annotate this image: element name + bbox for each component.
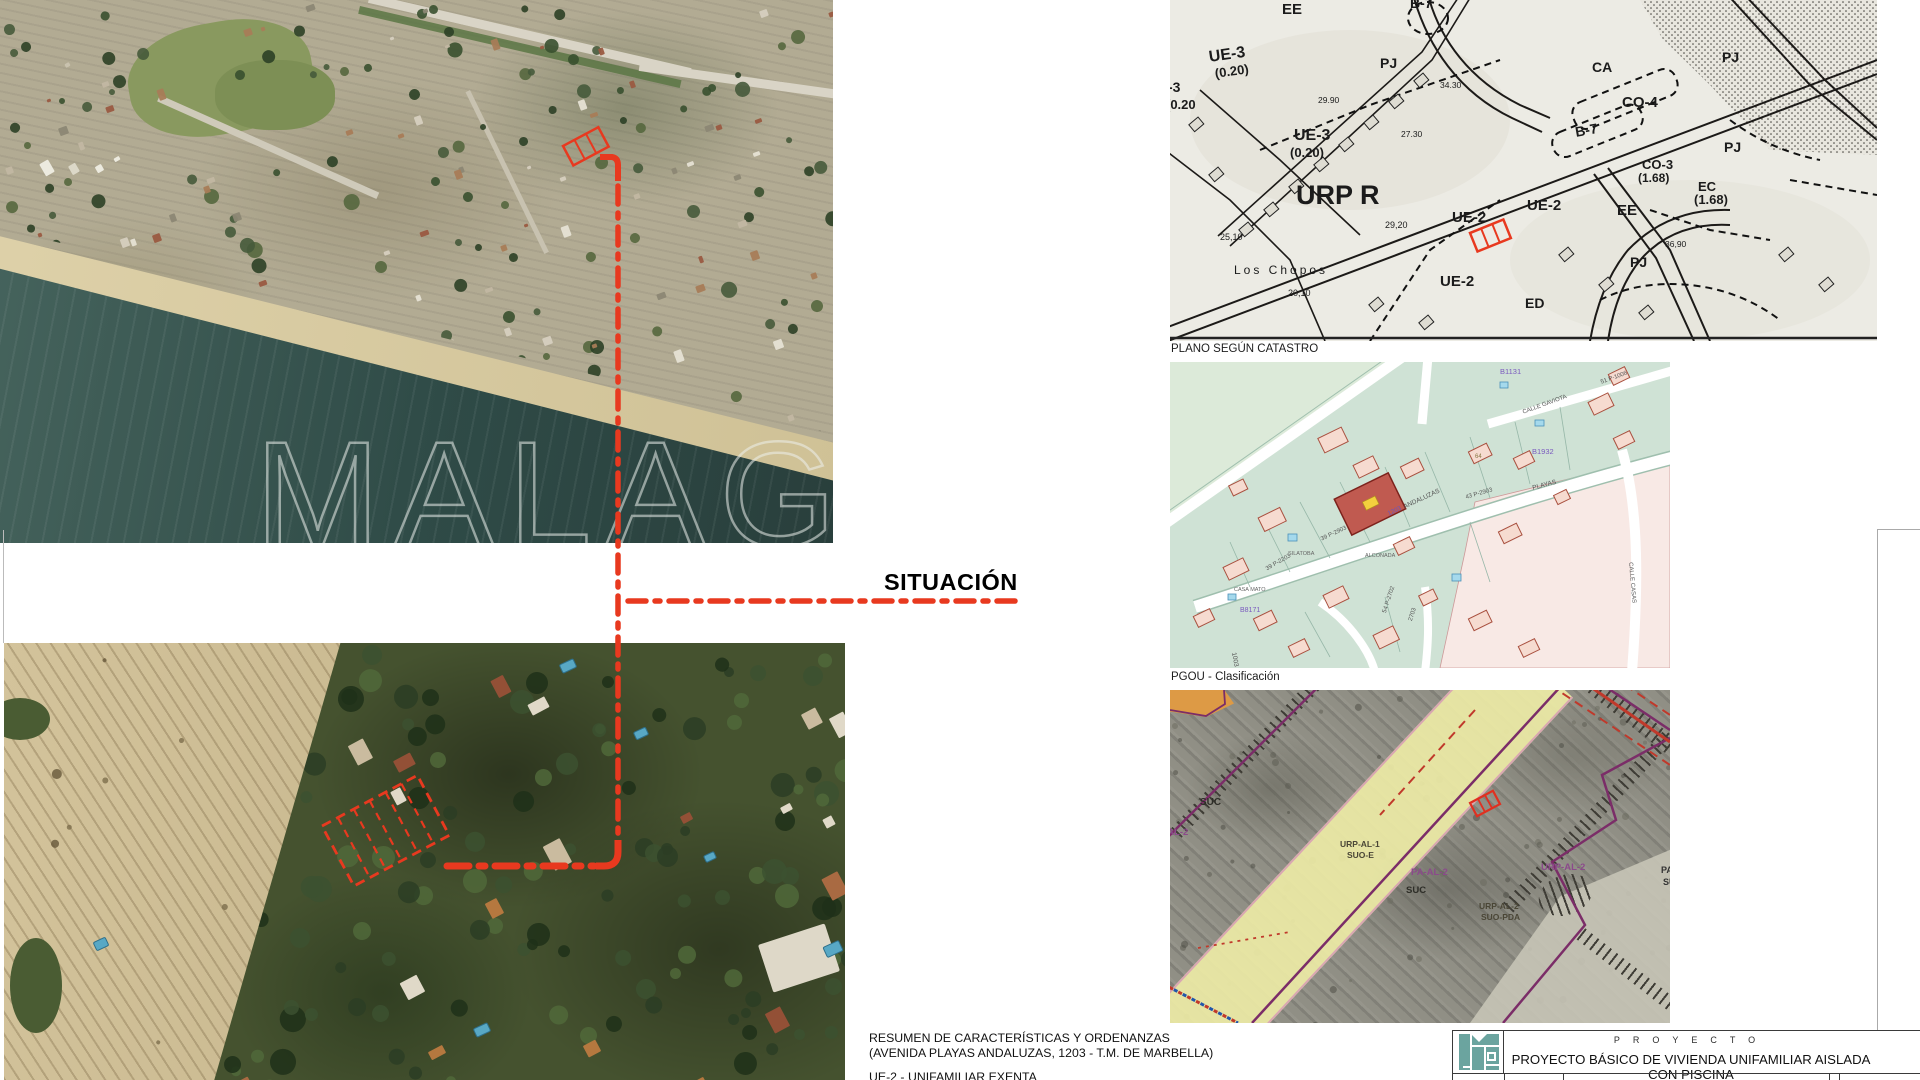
map-label: URP-AL-1 (1340, 840, 1380, 849)
map-label: 43 P-2903 (1465, 487, 1493, 500)
map-label: 20,10 (1288, 289, 1311, 298)
map-label: (1.68) (1694, 193, 1728, 206)
aerial-photo-top: MALAGA (0, 0, 833, 543)
map-label: SU (1663, 878, 1670, 887)
caption-pgou: PGOU - Clasificación (1171, 671, 1280, 683)
map-label: SUC (1200, 798, 1221, 808)
map-label: Los Chopos (1234, 264, 1328, 276)
pgou-map: SUCURP-AL-1SUO-EPA-AL-2SUCURP-AL-2SUO-PD… (1170, 690, 1670, 1023)
map-label: URP-AL-2 (1541, 863, 1585, 873)
catastro-bw-map: EEB-7PJUE-3(0.20)-3(0.20UE-3(0.20)29.903… (1170, 0, 1877, 341)
project-kicker: PROYECTO (1504, 1035, 1878, 1045)
map-label: 39 P-2903 (1320, 525, 1348, 542)
map-label: 51 P-1006 (1600, 371, 1628, 386)
map-label: 2703 (1408, 607, 1418, 622)
map-label: CO-4 (1622, 95, 1658, 110)
map-label: 64 (1475, 454, 1482, 460)
summary-line-3: UE-2 - UNIFAMILIAR EXENTA (869, 1070, 1213, 1080)
sheet-border-right (1877, 529, 1878, 1030)
map-label: PJ (1380, 56, 1397, 70)
map-label: (0.20 (1170, 98, 1196, 111)
map-label: B-7 (1574, 121, 1599, 139)
map-label: 29,20 (1385, 221, 1408, 230)
sheet-border-left (3, 530, 4, 643)
map-label: 54 P-2702 (1382, 586, 1396, 614)
map-label: PJ (1630, 255, 1647, 269)
map-label: SILATOBA (1288, 552, 1314, 558)
map-label: ED (1525, 296, 1544, 310)
map-label: PA (1661, 866, 1670, 875)
map-label: (0.20) (1214, 62, 1249, 80)
map-label: B1131 (1500, 368, 1521, 376)
map-label: EE (1617, 203, 1637, 218)
caption-catastro: PLANO SEGÚN CATASTRO (1171, 343, 1318, 355)
map-label: PJ (1722, 50, 1739, 64)
map-label: B-7 (1410, 0, 1433, 10)
summary-line-1: RESUMEN DE CARACTERÍSTICAS Y ORDENANZAS (869, 1031, 1213, 1046)
map-label: SUO-PDA (1481, 913, 1520, 922)
map-label: PLAYAS (1532, 480, 1557, 493)
summary-line-2: (AVENIDA PLAYAS ANDALUZAS, 1203 - T.M. D… (869, 1046, 1213, 1061)
map-label: UE-3 (1294, 128, 1330, 144)
situacion-label: SITUACIÓN (884, 569, 1018, 596)
aerial-photo-bottom (4, 643, 845, 1080)
map-label: -AL-2 (1170, 828, 1188, 838)
map-label: PA-AL-2 (1411, 868, 1448, 878)
plan-sheet: MALAGA (0, 0, 1920, 1080)
map-label: UE-2 (1452, 210, 1486, 225)
map-label: 36,90 (1665, 240, 1686, 249)
project-logo (1459, 1034, 1499, 1070)
map-label: CALLE CASAS (1627, 562, 1637, 603)
project-title: PROYECTO BÁSICO DE VIVIENDA UNIFAMILIAR … (1504, 1052, 1878, 1080)
map-label: CO-3 (1642, 158, 1673, 171)
pgou-map-labels: SUCURP-AL-1SUO-EPA-AL-2SUCURP-AL-2SUO-PD… (1170, 690, 1670, 1023)
map-label: 29.90 (1318, 96, 1339, 105)
map-label: UE-2 (1440, 274, 1474, 289)
map-label: URP-AL-2 (1479, 902, 1519, 911)
watermark: MALAGA (255, 408, 833, 543)
parcel-map: B1131B1932B8171CALLE GAVIOTAPLAYAS43 P-2… (1170, 362, 1670, 668)
summary-block: RESUMEN DE CARACTERÍSTICAS Y ORDENANZAS … (869, 1031, 1213, 1080)
map-label: ANDALUZAS (1403, 489, 1441, 511)
map-label: (0.20) (1290, 146, 1324, 159)
map-label: B8171 (1240, 607, 1260, 614)
map-label: CA (1592, 60, 1612, 74)
map-label: 1203 (1387, 506, 1403, 518)
map-label: SUC (1406, 886, 1426, 896)
sheet-border-top-right (1877, 529, 1920, 530)
logo-triangle (1471, 1034, 1487, 1042)
vegetation-patch (10, 938, 62, 1033)
map-label: (1.68) (1638, 172, 1669, 184)
logo-cell (1453, 1031, 1504, 1073)
map-label: EE (1282, 2, 1302, 17)
title-block-divider (1453, 1073, 1920, 1074)
map-label: 34.30 (1440, 81, 1461, 90)
title-block: PROYECTO PROYECTO BÁSICO DE VIVIENDA UNI… (1452, 1030, 1920, 1080)
bw-map-labels: EEB-7PJUE-3(0.20)-3(0.20UE-3(0.20)29.903… (1170, 0, 1877, 341)
map-label: CALLE GAVIOTA (1522, 394, 1568, 416)
map-label: ALCONADA (1365, 554, 1395, 560)
map-label: URP R (1296, 182, 1380, 209)
map-label: 1003 (1230, 652, 1239, 667)
map-label: UE-2 (1527, 198, 1561, 213)
map-label: PJ (1724, 140, 1741, 154)
map-label: 27.30 (1401, 130, 1422, 139)
parcel-map-labels: B1131B1932B8171CALLE GAVIOTAPLAYAS43 P-2… (1170, 362, 1670, 668)
map-label: -3 (1170, 80, 1180, 94)
map-label: SUO-E (1347, 851, 1374, 860)
map-label: CASA MATO (1234, 588, 1266, 594)
map-label: B1932 (1532, 448, 1554, 456)
map-label: 25,10 (1220, 233, 1243, 242)
